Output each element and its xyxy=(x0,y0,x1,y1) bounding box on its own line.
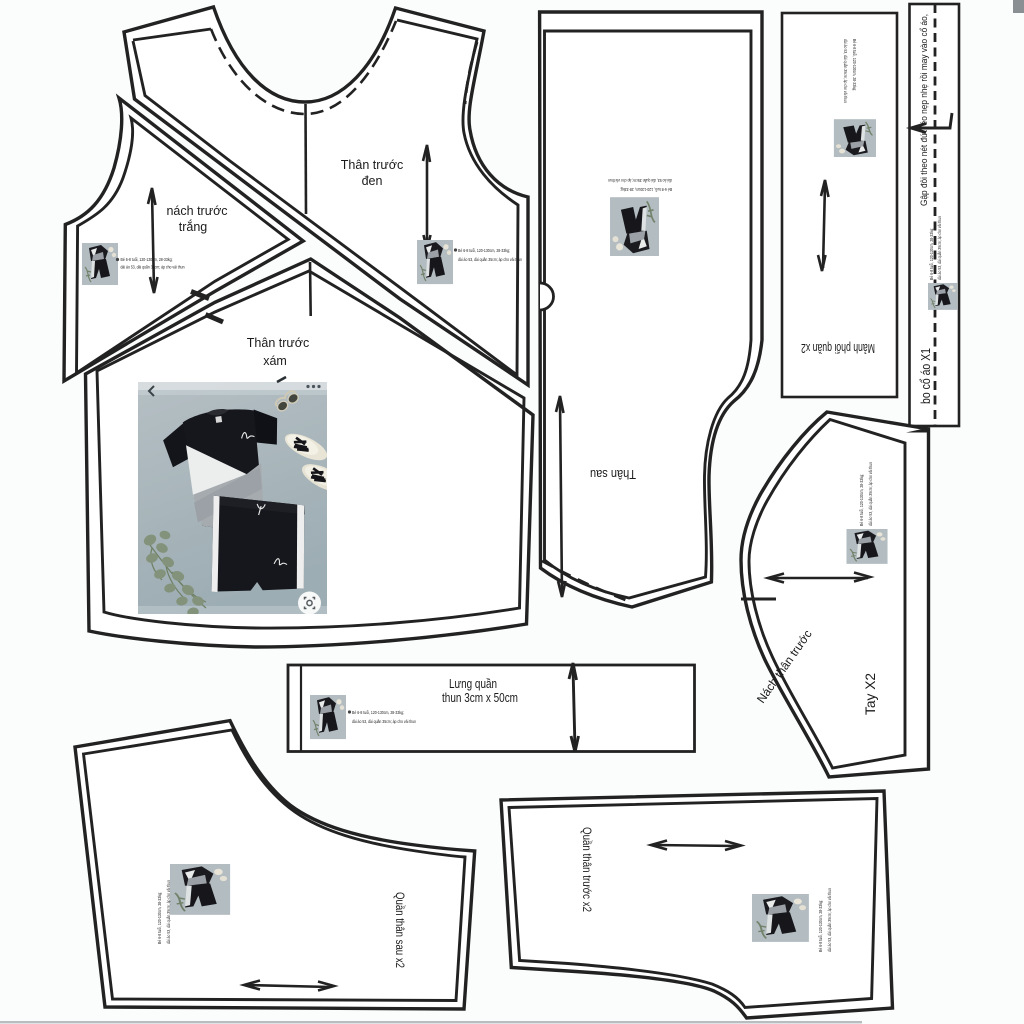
svg-text:dài áo 53, dài quần 35cm; áp c: dài áo 53, dài quần 35cm; áp cho vải thu… xyxy=(121,265,185,271)
svg-text:thun 3cm x 50cm: thun 3cm x 50cm xyxy=(442,691,518,705)
svg-text:dài áo 53, dài quần 35cm; áp c: dài áo 53, dài quần 35cm; áp cho vải thu… xyxy=(827,888,833,952)
svg-text:bo cổ áo X1: bo cổ áo X1 xyxy=(919,348,933,404)
svg-text:dài áo 53, dài quần 35cm; áp c: dài áo 53, dài quần 35cm; áp cho vải thu… xyxy=(937,216,943,280)
svg-text:Bé 6-8 tuổi, 120-130cm, 28-33k: Bé 6-8 tuổi, 120-130cm, 28-33kg; xyxy=(858,474,865,526)
svg-text:Thân trước: Thân trước xyxy=(247,336,309,350)
svg-text:Quần thân sau x2: Quần thân sau x2 xyxy=(393,892,407,968)
svg-text:dài áo 53, dài quần 35cm; áp c: dài áo 53, dài quần 35cm; áp cho vải thu… xyxy=(868,462,874,526)
svg-text:Bé 6-8 tuổi, 120-130cm, 28-33k: Bé 6-8 tuổi, 120-130cm, 28-33kg; xyxy=(156,892,163,944)
svg-text:Lưng quần: Lưng quần xyxy=(449,677,497,691)
svg-text:dài áo 53, dài quần 35cm; áp c: dài áo 53, dài quần 35cm; áp cho vải thu… xyxy=(166,880,172,944)
svg-text:dài áo 53, dài quần 35cm; áp c: dài áo 53, dài quần 35cm; áp cho vải thu… xyxy=(842,39,848,103)
svg-text:nách trước: nách trước xyxy=(166,204,227,218)
svg-text:Bé 6-8 tuổi, 120-130cm, 28-33k: Bé 6-8 tuổi, 120-130cm, 28-33kg; xyxy=(352,709,404,716)
svg-text:Quần thân trước x2: Quần thân trước x2 xyxy=(580,827,594,912)
svg-text:Tay X2: Tay X2 xyxy=(862,673,878,715)
svg-text:dài áo 53, dài quần 35cm; áp c: dài áo 53, dài quần 35cm; áp cho vải thu… xyxy=(608,177,672,183)
svg-text:đen: đen xyxy=(362,174,383,188)
svg-text:dài áo 53, dài quần 35cm; áp c: dài áo 53, dài quần 35cm; áp cho vải thu… xyxy=(352,719,416,725)
svg-text:trắng: trắng xyxy=(179,219,208,234)
svg-text:Bé 6-8 tuổi, 120-130cm, 28-33k: Bé 6-8 tuổi, 120-130cm, 28-33kg; xyxy=(851,39,858,91)
svg-text:Bé 6-8 tuổi, 120-130cm, 28-33k: Bé 6-8 tuổi, 120-130cm, 28-33kg; xyxy=(121,256,173,263)
svg-text:xám: xám xyxy=(263,354,287,368)
svg-text:Bé 6-8 tuổi, 120-130cm, 28-33k: Bé 6-8 tuổi, 120-130cm, 28-33kg; xyxy=(620,186,672,193)
svg-text:Mảnh phối quần x2: Mảnh phối quần x2 xyxy=(801,341,875,355)
svg-text:dài áo 53, dài quần 35cm; áp c: dài áo 53, dài quần 35cm; áp cho vải thu… xyxy=(458,257,522,263)
svg-text:Thân sau: Thân sau xyxy=(590,467,636,481)
svg-text:Bé 6-8 tuổi, 120-130cm, 28-33k: Bé 6-8 tuổi, 120-130cm, 28-33kg; xyxy=(928,228,935,280)
svg-text:Bé 6-8 tuổi, 120-130cm, 28-33k: Bé 6-8 tuổi, 120-130cm, 28-33kg; xyxy=(458,247,510,254)
svg-text:Bé 6-8 tuổi, 120-130cm, 28-33k: Bé 6-8 tuổi, 120-130cm, 28-33kg; xyxy=(817,900,824,952)
svg-text:Gập đôi theo nét đứt, éo nẹp n: Gập đôi theo nét đứt, éo nẹp nhẹ rồi may… xyxy=(919,14,929,206)
svg-text:Thân trước: Thân trước xyxy=(341,158,403,172)
